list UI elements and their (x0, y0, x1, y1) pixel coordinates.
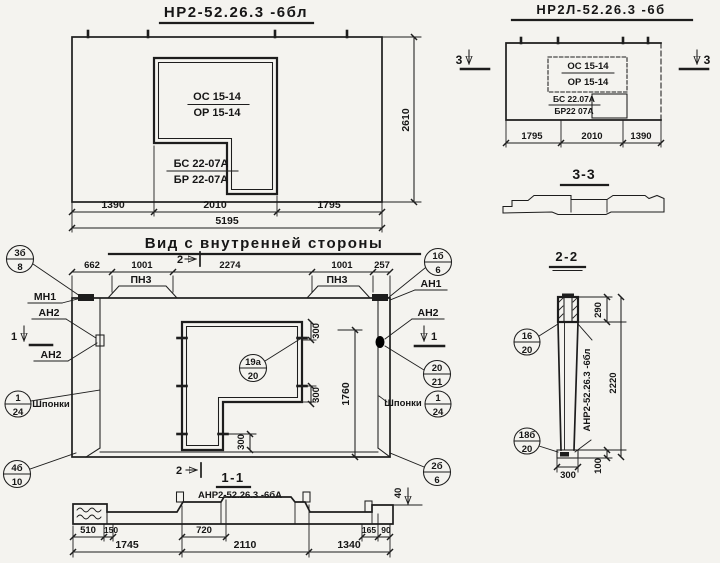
tr-dim-2010: 2010 (581, 131, 602, 142)
dim-290: 290 (593, 302, 604, 318)
opening-label-top: ОС 15-14 (193, 91, 242, 103)
svg-text:2: 2 (177, 254, 183, 266)
dim-300-top: 300 (311, 323, 322, 339)
main-inner-side-view: Вид с внутренней стороны 662 1001 2274 1… (11, 235, 447, 457)
block-label-top: БС 22-07А (174, 158, 229, 170)
dim-40: 40 (393, 488, 404, 499)
svg-text:3б: 3б (14, 248, 25, 259)
svg-text:3: 3 (456, 53, 463, 67)
svg-text:1: 1 (431, 331, 437, 343)
section-3-marker-left: 3 (456, 50, 489, 69)
blueprint-svg: НР2-52.26.3 -6бл ОС 15-14 ОР 15-14 БС 22… (0, 0, 720, 563)
callout-18b-20: 18б 20 (514, 428, 558, 455)
svg-text:1: 1 (435, 393, 441, 404)
svg-text:20: 20 (522, 345, 533, 356)
dim-720: 720 (196, 525, 212, 536)
dim-90: 90 (381, 525, 391, 535)
svg-text:1: 1 (15, 393, 21, 404)
dim-1795: 1795 (317, 199, 341, 211)
svg-text:1: 1 (11, 331, 17, 343)
svg-text:21: 21 (432, 377, 443, 388)
section-1-marker-left: 1 (11, 326, 52, 345)
main-door-opening (182, 322, 302, 450)
svg-text:18б: 18б (519, 430, 536, 441)
dim-100: 100 (593, 458, 604, 474)
callout-2b-6: 2б 6 (390, 453, 451, 486)
dim-1745: 1745 (115, 539, 139, 551)
opening-label-bottom: ОР 15-14 (193, 107, 241, 119)
dim-510: 510 (80, 525, 96, 536)
label-an2-left1: АН2 (38, 307, 59, 319)
section-3-marker-right: 3 (680, 50, 711, 69)
svg-text:8: 8 (17, 262, 22, 273)
label-an2-left2: АН2 (40, 349, 61, 361)
callout-1b-6: 1б 6 (388, 249, 452, 299)
section-2-2-mark-label: АНР2-52.26.3 -6бл (582, 349, 593, 432)
svg-text:20: 20 (248, 371, 259, 382)
dim-150: 150 (104, 525, 118, 535)
dim-300-bottom: 300 (236, 434, 247, 450)
dim-257: 257 (374, 260, 390, 271)
tr-block-label-top: БС 22.07А (553, 94, 595, 104)
dim-1760: 1760 (340, 382, 352, 406)
svg-text:2: 2 (176, 465, 182, 477)
section-3-3-profile (503, 196, 664, 215)
section-2-marker-bottom: 2 (176, 463, 201, 477)
callout-19a-20: 19а 20 (240, 339, 301, 382)
dim-300-width: 300 (560, 470, 576, 481)
section-3-3-title: 3-3 (572, 166, 595, 182)
callout-1-24-left: 1 24 (5, 391, 31, 418)
anchor-plate-an1 (372, 294, 388, 301)
anchor-hook (365, 501, 372, 512)
svg-text:20: 20 (432, 363, 443, 374)
tr-opening-label-bottom: ОР 15-14 (568, 77, 609, 88)
svg-text:6: 6 (435, 265, 440, 276)
svg-text:10: 10 (12, 477, 23, 488)
pn3-embed-right (307, 286, 370, 298)
dim-1001a: 1001 (131, 260, 153, 271)
label-an1: АН1 (420, 278, 441, 290)
dim-2010: 2010 (203, 199, 227, 211)
dim-662: 662 (84, 260, 100, 271)
tr-opening-label-top: ОС 15-14 (567, 61, 609, 72)
svg-text:16: 16 (522, 331, 533, 342)
section-2-2-view: 2-2 АНР2-52.26.3 -6бл 290 2220 100 (550, 249, 626, 481)
top-right-title: НР2Л-52.26.3 -6б (536, 2, 665, 17)
dim-5195: 5195 (215, 215, 239, 227)
anchor-hook (303, 492, 310, 502)
section-1-1-subtitle: АНР2-52.26.3 -6бА (198, 490, 282, 501)
callout-3b-8: 3б 8 (7, 246, 81, 297)
top-right-panel-view: НР2Л-52.26.3 -6б ОС 15-14 ОР 15-14 БС 22… (456, 2, 711, 215)
label-mn1: МН1 (34, 291, 56, 303)
svg-text:20: 20 (522, 444, 533, 455)
label-shponki-left: Шпонки (32, 399, 70, 410)
svg-text:3: 3 (704, 53, 711, 67)
dim-1390: 1390 (101, 199, 125, 211)
pn3-embed-left (108, 286, 177, 298)
svg-text:2б: 2б (431, 461, 442, 472)
callout-20-21: 20 21 (385, 346, 451, 388)
top-left-panel-view: НР2-52.26.3 -6бл ОС 15-14 ОР 15-14 БС 22… (72, 4, 421, 232)
pn3-label-right: ПН3 (327, 274, 348, 286)
drawing-sheet: НР2-52.26.3 -6бл ОС 15-14 ОР 15-14 БС 22… (0, 0, 720, 563)
section-2-2-rib (558, 297, 578, 322)
svg-text:6: 6 (434, 475, 439, 486)
tr-dim-1795: 1795 (521, 131, 543, 142)
dim-1340: 1340 (337, 539, 361, 551)
anchor-plate-mn1 (78, 294, 94, 301)
dim-2110: 2110 (234, 539, 257, 551)
svg-text:1б: 1б (432, 251, 443, 262)
anchor-plate-an2-right (376, 336, 385, 348)
dim-2274: 2274 (219, 260, 241, 271)
callout-4b-10: 4б 10 (4, 453, 77, 488)
label-an2-right: АН2 (417, 307, 438, 319)
tr-block-label-bottom: БР22 07А (554, 106, 593, 116)
anchor-hook (177, 492, 184, 502)
label-shponki-right: Шпонки (384, 398, 422, 409)
dim-1001b: 1001 (331, 260, 353, 271)
dim-165: 165 (362, 525, 376, 535)
section-1-marker-right: 1 (415, 326, 444, 346)
pn3-label-left: ПН3 (131, 274, 152, 286)
svg-text:24: 24 (13, 407, 24, 418)
dim-2220: 2220 (608, 372, 619, 393)
section-1-1-profile (73, 497, 393, 524)
top-left-title: НР2-52.26.3 -6бл (164, 4, 308, 21)
dim-300-mid: 300 (311, 387, 322, 403)
svg-text:4б: 4б (11, 463, 22, 474)
section-2-2-title: 2-2 (555, 249, 578, 264)
block-label-bottom: БР 22-07А (174, 174, 228, 186)
callout-16-20: 16 20 (514, 324, 558, 356)
section-1-1-title: 1-1 (221, 470, 244, 485)
dim-2610: 2610 (400, 108, 412, 132)
main-view-title: Вид с внутренней стороны (145, 235, 384, 252)
callout-1-24-right: 1 24 (425, 391, 451, 418)
section-1-1-view: 2 1-1 АНР2-52.26.3 -6бА 40 (73, 463, 422, 557)
svg-text:24: 24 (433, 407, 444, 418)
svg-text:19а: 19а (245, 357, 262, 368)
tr-dim-1390: 1390 (630, 131, 651, 142)
